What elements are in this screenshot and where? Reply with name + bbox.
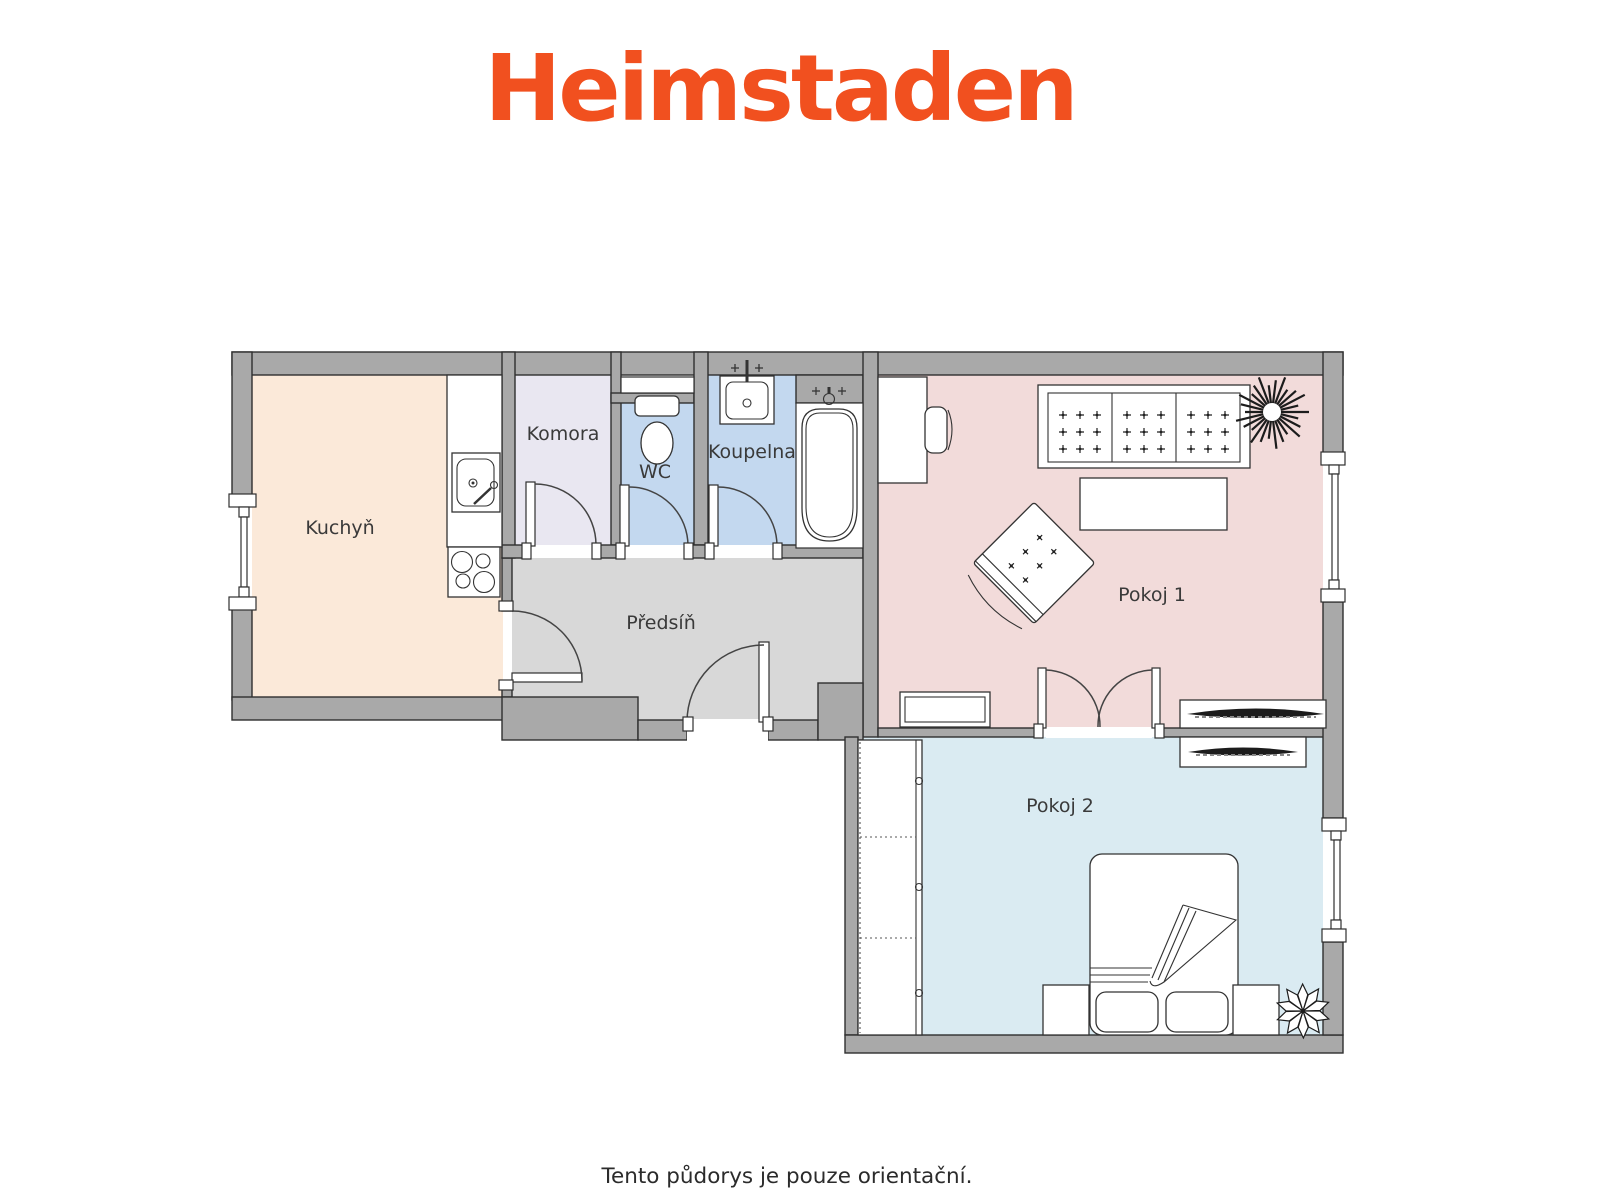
wall-main-vertical bbox=[863, 352, 878, 737]
bed-pillow-right bbox=[1166, 992, 1228, 1032]
bathtub bbox=[796, 387, 863, 548]
wc-label: WC bbox=[639, 461, 671, 483]
wall-pantry-west bbox=[502, 352, 515, 558]
nightstand-right bbox=[1233, 985, 1279, 1035]
wall-divider-right bbox=[1160, 728, 1328, 737]
hallway-floor bbox=[512, 558, 863, 720]
radiator-room1 bbox=[1180, 700, 1326, 728]
kitchen-label: Kuchyň bbox=[305, 517, 374, 539]
room2-label: Pokoj 2 bbox=[1026, 795, 1094, 817]
kitchen-sink bbox=[452, 453, 500, 512]
wall-kitchen-bottom bbox=[232, 697, 512, 720]
wc-vent-niche bbox=[621, 377, 694, 393]
wall-left-lower bbox=[232, 605, 252, 700]
bathroom-label: Koupelna bbox=[708, 441, 796, 463]
room1-label: Pokoj 1 bbox=[1118, 584, 1186, 606]
brand-logo: Heimstaden bbox=[484, 35, 1075, 142]
coffee-table bbox=[1080, 478, 1227, 530]
radiator-room2 bbox=[1180, 737, 1306, 767]
wall-wc-east bbox=[694, 352, 708, 545]
wall-entry-left bbox=[638, 720, 687, 740]
wall-room2-west bbox=[845, 737, 858, 1035]
desk bbox=[878, 377, 927, 483]
wall-divider-left bbox=[878, 728, 1038, 737]
sideboard bbox=[900, 692, 990, 727]
room2-window bbox=[1322, 818, 1346, 942]
wall-right-upper bbox=[1323, 352, 1343, 455]
wall-hall-bottom bbox=[502, 697, 638, 740]
wall-top bbox=[232, 352, 1343, 375]
wall-pillar bbox=[818, 683, 863, 740]
kitchen-window bbox=[229, 494, 256, 610]
floorplan-canvas: Heimstaden bbox=[0, 0, 1600, 1200]
wall-right-lower bbox=[1323, 942, 1343, 1035]
wall-bottom bbox=[845, 1035, 1343, 1053]
room1-window bbox=[1321, 452, 1345, 602]
wall-entry-right bbox=[768, 720, 818, 740]
floorplan-page: Heimstaden bbox=[0, 0, 1600, 1200]
wall-left-upper bbox=[232, 352, 252, 498]
nightstand-left bbox=[1043, 985, 1089, 1035]
disclaimer-caption: Tento půdorys je pouze orientační. bbox=[601, 1164, 973, 1189]
kitchen-stove bbox=[448, 547, 500, 597]
pantry-label: Komora bbox=[527, 423, 600, 445]
bed-pillow-left bbox=[1096, 992, 1158, 1032]
bed bbox=[1090, 854, 1238, 1035]
sofa bbox=[1038, 385, 1250, 468]
hallway-label: Předsíň bbox=[626, 612, 696, 634]
wardrobe bbox=[858, 740, 923, 1035]
